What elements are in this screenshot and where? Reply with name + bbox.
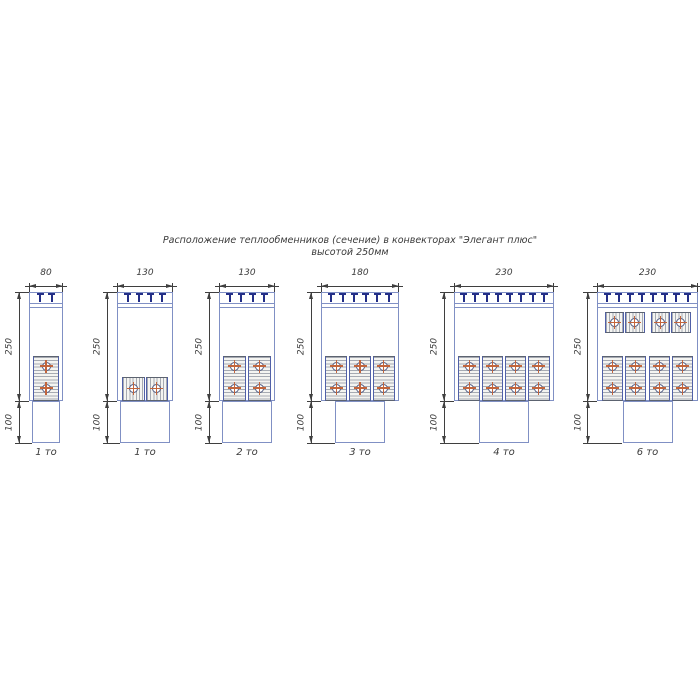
tube-circle-cross: [259, 382, 260, 395]
dimension-arrow: [105, 436, 109, 443]
tube-circle-cross: [538, 382, 539, 395]
dimension-arrow: [547, 284, 554, 288]
top-dimension-label: 130: [227, 268, 267, 278]
dimension-arrow: [207, 436, 211, 443]
dimension-arrow: [442, 394, 446, 401]
grille-band-line: [322, 303, 398, 304]
tube-circle-cross: [682, 360, 683, 373]
left-dimension-line: [311, 292, 312, 443]
grille-band-line: [322, 307, 398, 308]
height-dimension-label: 250: [195, 332, 206, 362]
base-height-dimension-label: 100: [297, 407, 308, 437]
tube-circle-cross: [660, 316, 661, 329]
left-dimension-line: [209, 292, 210, 443]
tube-circle-cross: [614, 316, 615, 329]
dimension-arrow: [586, 292, 590, 299]
dimension-arrow: [166, 284, 173, 288]
tube-circle-cross: [680, 316, 681, 329]
tube-circle-cross: [234, 382, 235, 395]
tube-circle-cross: [383, 360, 384, 373]
grille-slat-icon: [150, 293, 152, 302]
grille-slat-icon: [618, 293, 620, 302]
grille-band-line: [118, 303, 173, 304]
drawing-title-line1: Расположение теплообменников (сечение) в…: [0, 236, 700, 247]
top-dimension-line: [450, 286, 558, 287]
grille-slat-icon: [229, 293, 231, 302]
grille-slat-icon: [388, 293, 390, 302]
top-dimension-label: 230: [484, 268, 524, 278]
grille-slat-icon: [652, 293, 654, 302]
height-dimension-label: 250: [93, 332, 104, 362]
diagram-caption: 6 то: [618, 447, 678, 459]
base-height-dimension-label: 100: [93, 407, 104, 437]
tube-circle-cross: [612, 382, 613, 395]
dimension-arrow: [691, 284, 698, 288]
grille-slat-icon: [520, 293, 522, 302]
tube-circle-cross: [234, 360, 235, 373]
dimension-arrow: [207, 292, 211, 299]
diagram-caption: 4 то: [474, 447, 534, 459]
grille-slat-icon: [240, 293, 242, 302]
tube-circle-cross: [492, 382, 493, 395]
grille-slat-icon: [376, 293, 378, 302]
grille-slat-icon: [51, 293, 53, 302]
grille-slat-icon: [606, 293, 608, 302]
left-dimension-line: [444, 292, 445, 443]
grille-band-line: [220, 303, 275, 304]
height-dimension-label: 250: [430, 332, 441, 362]
grille-slat-icon: [486, 293, 488, 302]
grille-band-line: [30, 307, 63, 308]
dimension-arrow: [105, 292, 109, 299]
left-dimension-line: [107, 292, 108, 443]
grille-slat-icon: [474, 293, 476, 302]
grille-slat-icon: [252, 293, 254, 302]
tube-circle-cross: [45, 382, 46, 395]
tube-circle-cross: [659, 360, 660, 373]
base-height-dimension-label: 100: [430, 407, 441, 437]
tube-circle-cross: [359, 360, 360, 373]
height-dimension-label: 250: [297, 332, 308, 362]
dimension-arrow: [17, 394, 21, 401]
dimension-arrow: [29, 284, 36, 288]
dimension-arrow: [392, 284, 399, 288]
dimension-arrow: [454, 284, 461, 288]
grille-slat-icon: [342, 293, 344, 302]
tube-circle-cross: [259, 360, 260, 373]
tube-circle-cross: [469, 360, 470, 373]
grille-band-line: [455, 307, 553, 308]
pedestal-duct: [335, 401, 385, 443]
pedestal-duct: [479, 401, 529, 443]
dimension-arrow: [586, 436, 590, 443]
grille-slat-icon: [532, 293, 534, 302]
grille-slat-icon: [463, 293, 465, 302]
dimension-arrow: [207, 401, 211, 408]
grille-band-line: [598, 307, 696, 308]
grille-slat-icon: [353, 293, 355, 302]
grille-slat-icon: [509, 293, 511, 302]
tube-circle-cross: [156, 382, 157, 395]
pedestal-duct: [623, 401, 673, 443]
dimension-arrow: [105, 394, 109, 401]
dimension-arrow: [309, 401, 313, 408]
dimension-arrow: [117, 284, 124, 288]
tube-circle-cross: [469, 382, 470, 395]
left-dimension-line: [19, 292, 20, 443]
tube-circle-cross: [612, 360, 613, 373]
pedestal-duct: [222, 401, 272, 443]
grille-band-line: [598, 303, 696, 304]
base-height-dimension-label: 100: [573, 407, 584, 437]
grille-band-line: [220, 307, 275, 308]
tube-circle-cross: [45, 360, 46, 373]
tube-circle-cross: [133, 382, 134, 395]
pedestal-duct: [120, 401, 170, 443]
dimension-arrow: [105, 401, 109, 408]
grille-slat-icon: [161, 293, 163, 302]
tube-circle-cross: [336, 382, 337, 395]
grille-slat-icon: [127, 293, 129, 302]
dimension-arrow: [442, 401, 446, 408]
diagram-caption: 2 то: [217, 447, 277, 459]
grille-slat-icon: [497, 293, 499, 302]
dimension-arrow: [442, 436, 446, 443]
diagram-caption: 1 то: [115, 447, 175, 459]
diagram-caption: 3 то: [330, 447, 390, 459]
dimension-arrow: [17, 401, 21, 408]
grille-slat-icon: [675, 293, 677, 302]
tube-circle-cross: [383, 382, 384, 395]
tube-circle-cross: [635, 360, 636, 373]
base-height-dimension-label: 100: [5, 407, 16, 437]
tube-circle-cross: [359, 382, 360, 395]
grille-band-line: [455, 303, 553, 304]
grille-slat-icon: [687, 293, 689, 302]
grille-slat-icon: [664, 293, 666, 302]
drawing-sheet: Расположение теплообменников (сечение) в…: [0, 0, 700, 700]
dimension-arrow: [17, 292, 21, 299]
grille-slat-icon: [39, 293, 41, 302]
dimension-arrow: [586, 401, 590, 408]
top-dimension-line: [317, 286, 403, 287]
grille-slat-icon: [641, 293, 643, 302]
tube-circle-cross: [634, 316, 635, 329]
dimension-arrow: [321, 284, 328, 288]
left-dimension-line: [587, 292, 588, 443]
tube-circle-cross: [515, 382, 516, 395]
dimension-arrow: [268, 284, 275, 288]
grille-slat-icon: [543, 293, 545, 302]
dimension-arrow: [207, 394, 211, 401]
grille-slat-icon: [138, 293, 140, 302]
tube-circle-cross: [336, 360, 337, 373]
dimension-arrow: [219, 284, 226, 288]
dimension-arrow: [309, 436, 313, 443]
tube-circle-cross: [659, 382, 660, 395]
tube-circle-cross: [635, 382, 636, 395]
dimension-arrow: [309, 394, 313, 401]
diagram-caption: 1 то: [16, 447, 76, 459]
dimension-arrow: [586, 394, 590, 401]
tube-circle-cross: [682, 382, 683, 395]
height-dimension-label: 250: [573, 332, 584, 362]
grille-slat-icon: [629, 293, 631, 302]
pedestal-duct: [32, 401, 61, 443]
top-dimension-label: 180: [340, 268, 380, 278]
height-dimension-label: 250: [5, 332, 16, 362]
top-dimension-label: 80: [26, 268, 66, 278]
base-height-dimension-label: 100: [195, 407, 206, 437]
dimension-arrow: [56, 284, 63, 288]
dimension-arrow: [597, 284, 604, 288]
grille-slat-icon: [263, 293, 265, 302]
tube-circle-cross: [538, 360, 539, 373]
grille-band-line: [118, 307, 173, 308]
top-dimension-line: [593, 286, 700, 287]
dimension-arrow: [17, 436, 21, 443]
tube-circle-cross: [492, 360, 493, 373]
dimension-arrow: [309, 292, 313, 299]
top-dimension-label: 130: [125, 268, 165, 278]
tube-circle-cross: [515, 360, 516, 373]
dimension-arrow: [442, 292, 446, 299]
grille-slat-icon: [330, 293, 332, 302]
top-dimension-label: 230: [628, 268, 668, 278]
drawing-title-line2: высотой 250мм: [0, 248, 700, 259]
grille-band-line: [30, 303, 63, 304]
grille-slat-icon: [365, 293, 367, 302]
